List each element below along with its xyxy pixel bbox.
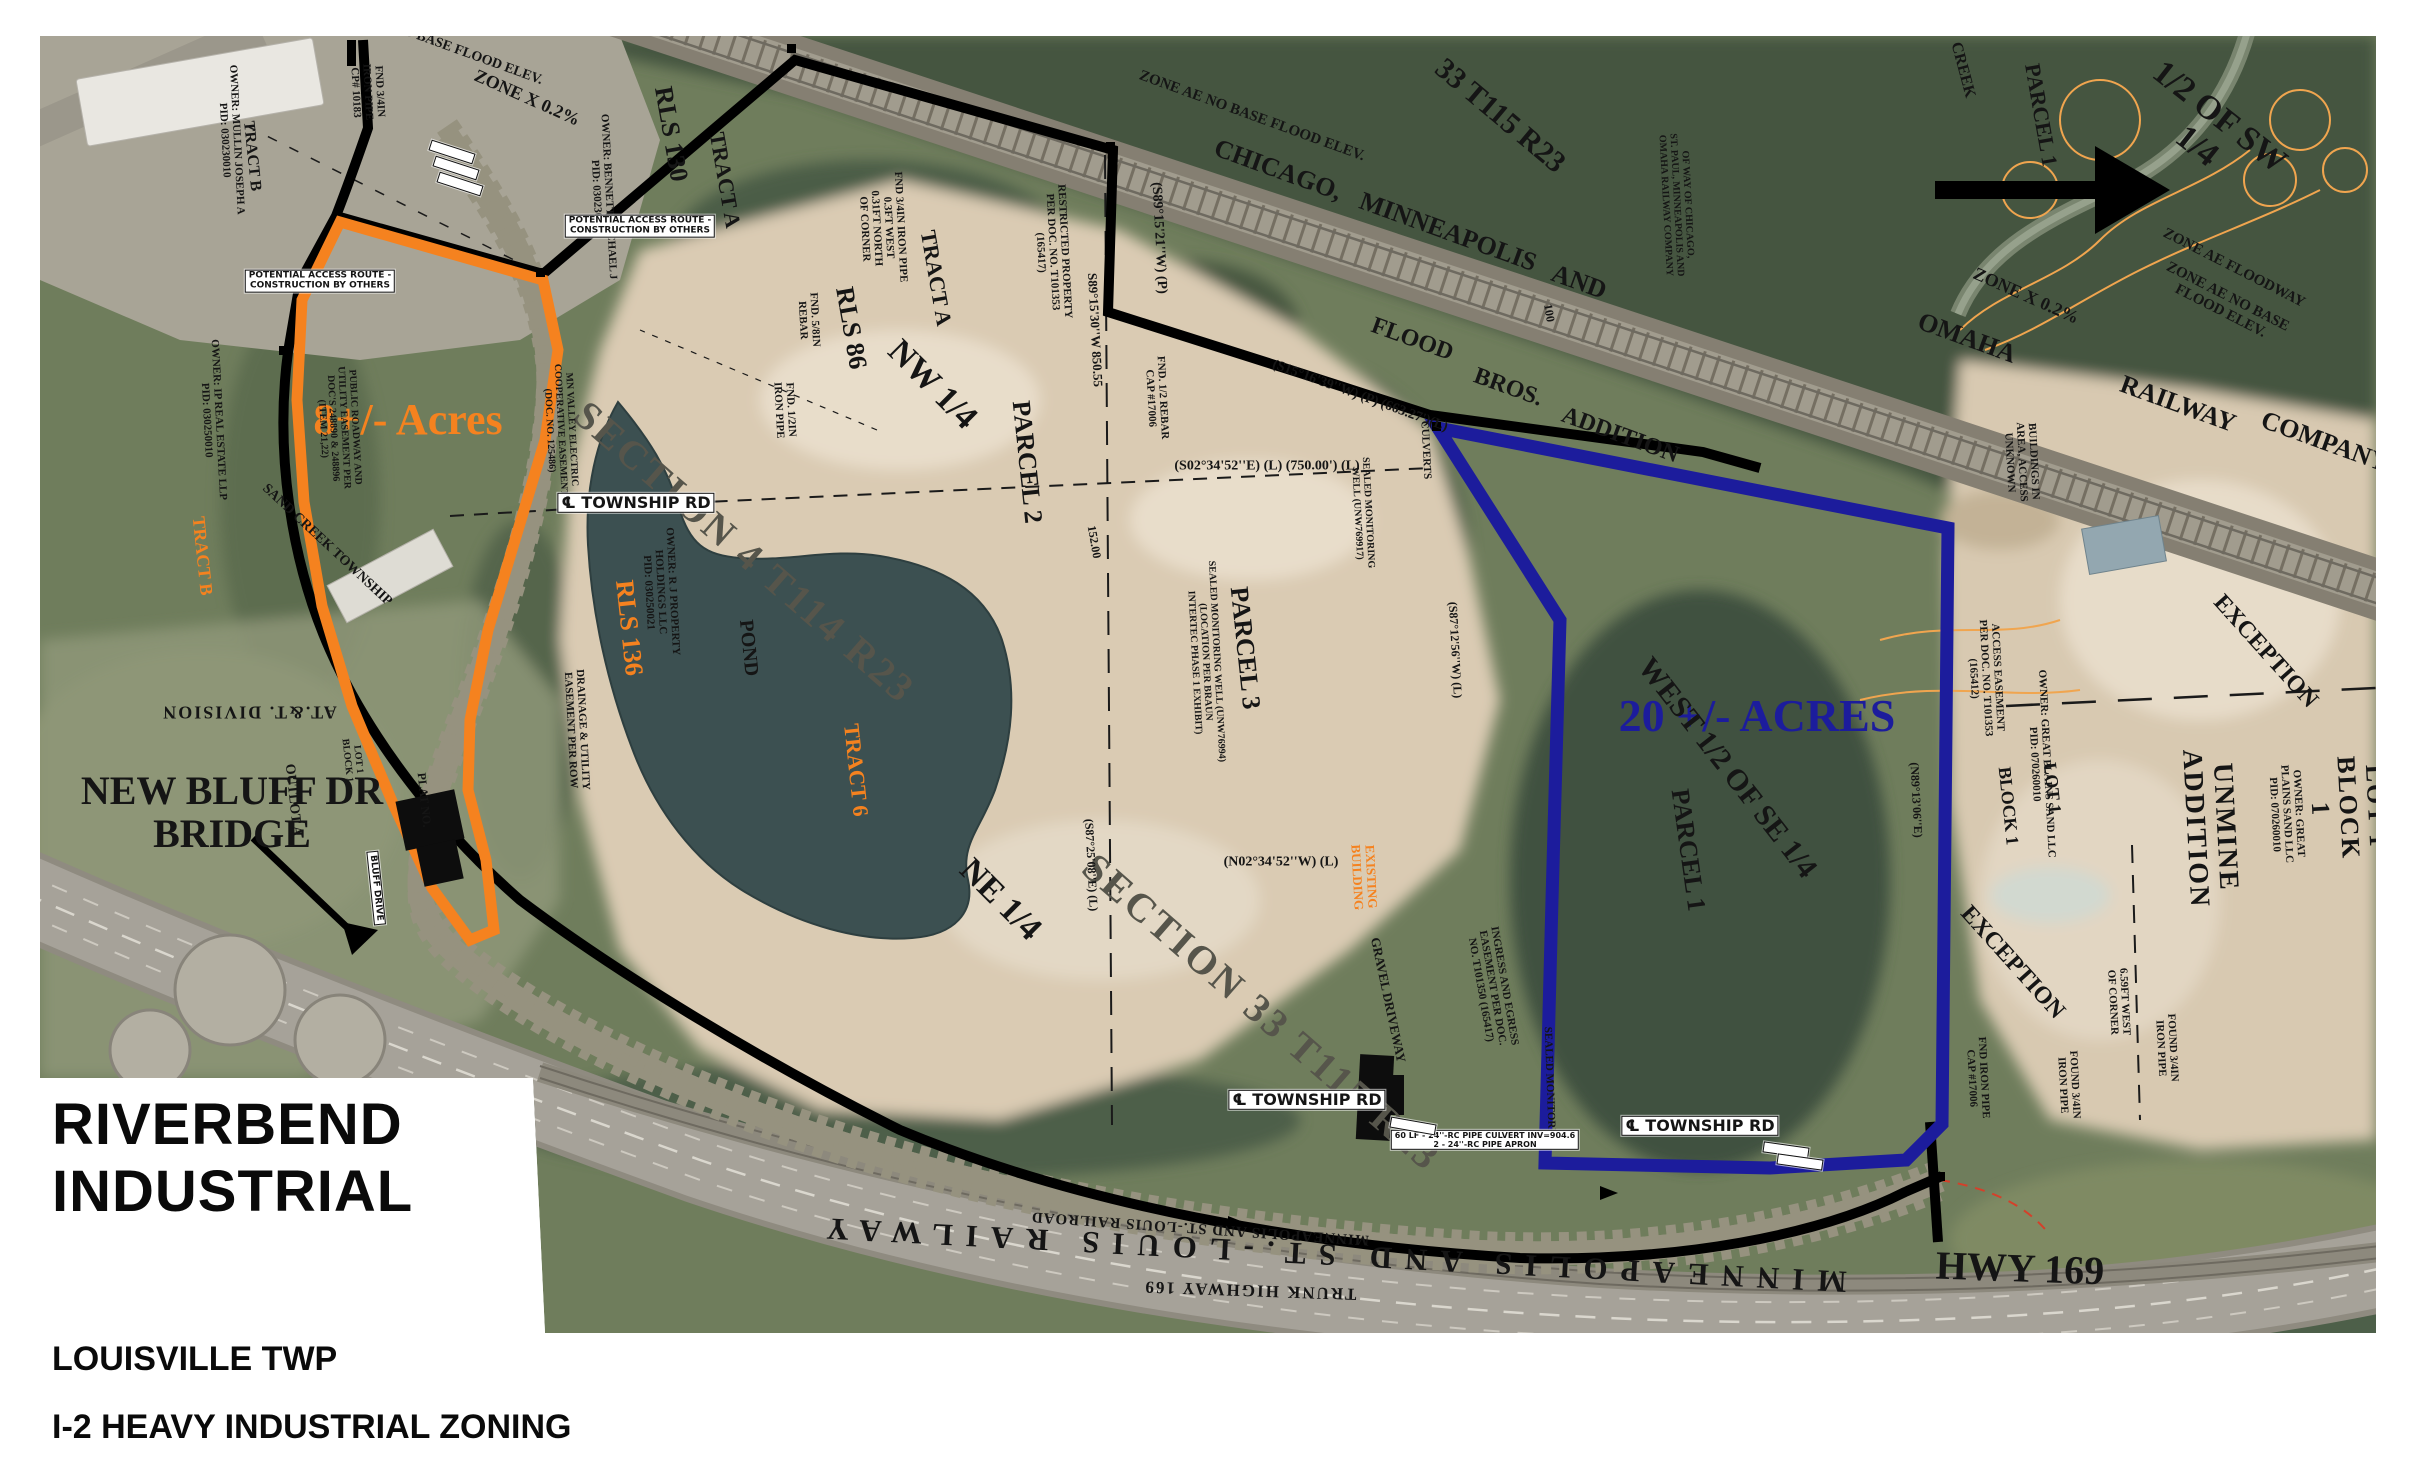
found-34-pipe-1: FOUND 3/4IN IRON PIPE — [2152, 1013, 2179, 1082]
fnd-34-cp10183: FND 3/4IN IRON PIPE CP# 10183 — [348, 63, 387, 121]
rr-railway: RAILWAY — [2116, 370, 2239, 438]
acres-8-label: 8+/- Acres — [313, 396, 502, 444]
t115-r23: 33 T115 R23 — [1429, 52, 1572, 179]
tract-6: TRACT 6 — [839, 722, 872, 817]
ingress-egress: INGRESS AND EGRESS EASEMENT PER DOC. NO.… — [1464, 926, 1520, 1051]
dim-100: 100 — [1541, 303, 1557, 323]
dim-152: 152.00 — [1085, 525, 1103, 560]
project-title-line1: RIVERBEND — [52, 1092, 413, 1159]
west-half-se: WEST 1/2 OF SE 1/4 — [1631, 652, 1823, 885]
rr-mstl-small: MINNEAPOLIS AND ST.-LOUIS RAILROAD — [1030, 1208, 1369, 1248]
bluff-drive: BLUFF DRIVE — [366, 851, 386, 926]
sealed-well-3: SEALED MONITORING — [1541, 1027, 1557, 1150]
section-33-label: SECTION 33 T115 R23 — [1074, 845, 1449, 1179]
rr-minneapolis: MINNEAPOLIS — [1356, 187, 1541, 277]
tract-b: TRACT B — [240, 120, 265, 192]
zone-x-2: ZONE X 0.2% — [1970, 264, 2082, 328]
att-division: AT.&T. DIVISION — [161, 702, 337, 721]
outlot-a: OUTLOT A — [282, 763, 305, 837]
owner-bennett: OWNER: BENNETT MICHAEL J PID: 030230010 — [586, 114, 618, 281]
sealed-well-2: SEALED MONITORING WELL (UNW76994) (LOCAT… — [1184, 560, 1227, 763]
west-of-corner: 6.59FT WEST OF CORNER — [2104, 968, 2131, 1037]
station-chip-6 — [1389, 1117, 1436, 1136]
culvert-note: 60 LF - 24''-RC PIPE CULVERT INV=904.6 2… — [1391, 1130, 1579, 1150]
acres-20-label: 20 +/- ACRES — [1619, 691, 1896, 741]
plat-no: PLAT NO. — [415, 772, 434, 828]
site-plan-page: NEW BLUFF DR BRIDGE8+/- Acres20 +/- ACRE… — [0, 0, 2415, 1466]
aerial-map: NEW BLUFF DR BRIDGE8+/- Acres20 +/- ACRE… — [0, 0, 2415, 1466]
block-1: BLOCK 1 — [1994, 766, 2022, 846]
owner-rj-property: OWNER: R J PROPERTY HOLDINGS LLC PID: 03… — [639, 527, 681, 657]
public-roadway-easement: PUBLIC ROADWAY AND UTILITY EASEMENT PER … — [313, 366, 363, 491]
township-rd-1: ℄ TOWNSHIP RD — [557, 493, 714, 513]
rls-86: RLS 86 — [830, 285, 872, 372]
station-chip-3 — [436, 172, 483, 197]
exception-2: EXCEPTION — [1955, 901, 2070, 1024]
fnd-half-pipe: FND. 1/2IN IRON PIPE — [771, 381, 798, 439]
map-label-layer: NEW BLUFF DR BRIDGE8+/- Acres20 +/- ACRE… — [0, 0, 2415, 1466]
fnd-34-pipe: FND 3/4IN IRON PIPE 0.3FT WEST 0.31FT NO… — [855, 171, 908, 284]
zone-ae-2: ZONE AE NO BASE FLOOD ELEV. — [1137, 68, 1367, 165]
fnd-58-rebar: FND. 5/8IN REBAR — [795, 292, 822, 348]
rr-and: AND — [1548, 259, 1611, 305]
brg-s15-16-39: (S15°16'39''W) (P) (663.27')(L) — [1270, 357, 1450, 435]
brg-s87-12-56: (S87°12'56''W) (L) — [1446, 601, 1464, 698]
brg-s02-34-52: (S02°34'52''E) (L) (750.00') (L) — [1174, 458, 1359, 473]
zone-ae-1: ZONE AE NO BASE FLOOD ELEV. — [2132, 246, 2317, 362]
existing-building: EXISTING BUILDING — [1348, 843, 1379, 910]
base-flood-elev: NO BASE FLOOD ELEV. — [391, 20, 544, 88]
station-chip-4 — [1762, 1141, 1809, 1158]
zoning-line: I-2 HEAVY INDUSTRIAL ZONING — [52, 1408, 572, 1447]
project-title-line2: INDUSTRIAL — [52, 1159, 413, 1226]
brg-s89-15-30: S89°15'30''W 850.55 — [1085, 273, 1105, 388]
rr-company: COMPANY — [2257, 406, 2392, 478]
access-easement: ACCESS EASEMENT PER DOC. NO. T101353 (16… — [1964, 619, 2006, 738]
unmine-addition: UNMINE ADDITION — [2174, 724, 2245, 932]
tract-b-orange: TRACT B — [188, 516, 216, 597]
found-34-pipe-2: FOUND 3/4IN IRON PIPE — [2054, 1050, 2081, 1119]
gravel-driveway: GRAVEL DRIVEWAY — [1368, 936, 1408, 1064]
nw-quarter: NW 1/4 — [880, 333, 984, 437]
potential-access-1: POTENTIAL ACCESS ROUTE - CONSTRUCTION BY… — [565, 215, 715, 238]
ne-quarter: NE 1/4 — [952, 852, 1048, 948]
flood-label: FLOOD — [1367, 313, 1456, 367]
lot-1: LOT 1 — [2040, 762, 2065, 815]
zone-ae-floodway: ZONE AE FLOODWAY — [2160, 225, 2307, 311]
parcel-3-label: PARCEL 3 — [1225, 585, 1266, 710]
sealed-well-1: SEALED MONITORING WELL (UNW769917) — [1348, 457, 1375, 569]
bridge-callout: NEW BLUFF DR BRIDGE — [81, 769, 383, 855]
tract-a-2: TRACT A — [916, 228, 956, 327]
exception-1: EXCEPTION — [2208, 590, 2323, 713]
fnd-pipe-17006: FND IRON PIPE CAP #17006 — [1963, 1036, 1991, 1119]
addition-label: ADDITION — [1558, 403, 1682, 469]
mn-valley-easement: MN VALLEY ELECTRIC COOPERATIVE EASEMENT … — [540, 363, 579, 497]
rls-130: RLS 130 — [649, 84, 693, 183]
creek-label: CREEK — [1947, 40, 1978, 99]
parcel-1-blue: PARCEL 1 — [1666, 787, 1711, 913]
parcel-2-label: PARCEL 2 — [1007, 399, 1048, 524]
owner-great-plains-2: OWNER: GREAT PLAINS SAND LLC PID: 070260… — [2265, 749, 2307, 880]
rr-chicago: CHICAGO, — [1210, 134, 1345, 206]
owner-mullin: OWNER: MULLIN JOSEPH A PID: 030230010 — [214, 64, 246, 215]
lot1-block1-east: LOT 1 BLOCK 1 — [2303, 754, 2393, 862]
township-line: LOUISVILLE TWP — [52, 1340, 337, 1379]
brg-n89-13-06: (N89°13'06''E) — [1908, 762, 1925, 838]
buildings-unknown: BUILDINGS IN AREA, ACCESS UNKNOWN — [2001, 421, 2041, 502]
sand-creek-township: SAND CREEK TOWNSHIP — [259, 481, 395, 609]
section-4-label: SECTION 4 T114 R23 — [566, 392, 924, 711]
hwy-169-label: HWY 169 — [1935, 1243, 2105, 1292]
drainage-easement: DRAINAGE & UTILITY EASEMENT PER ROW — [561, 669, 591, 791]
restricted-property: RESTRICTED PROPERTY PER DOC. NO. T101353… — [1031, 184, 1074, 320]
rr-omaha: OMAHA — [1914, 307, 2020, 368]
culverts: CULVERTS — [1418, 420, 1433, 479]
owner-real-estate: OWNER: IP REAL ESTATE LLP PID: 030250010 — [196, 339, 228, 501]
trunk-highway-169: TRUNK HIGHWAY 169 — [1143, 1277, 1357, 1303]
township-rd-3: ℄ TOWNSHIP RD — [1621, 1116, 1778, 1136]
tract-a-1: TRACT A — [705, 130, 745, 229]
bros-label: BROS. — [1470, 364, 1546, 413]
title-block: RIVERBEND INDUSTRIAL — [52, 1092, 413, 1225]
brg-s87-25-08: (S87°25'08''E) (L) — [1082, 818, 1100, 911]
brg-n02-34-52: (N02°34'52''W) (L) — [1224, 854, 1339, 869]
station-chip-5 — [1776, 1153, 1823, 1170]
township-rd-2: ℄ TOWNSHIP RD — [1228, 1090, 1385, 1110]
owner-great-plains-1: OWNER: GREAT PLAINS SAND LLC PID: 070260… — [2023, 669, 2057, 858]
brg-s89-15-21: (S89°15'21''W) (P) — [1149, 182, 1170, 294]
half-of-sw: 1/2 OF SW 1/4 — [2104, 39, 2312, 224]
pond-label: POND — [734, 619, 761, 678]
rr-right-of-way: OF WAY OF CHICAGO, ST. PAUL, MINNEAPOLIS… — [1656, 133, 1696, 278]
station-chip-1 — [428, 140, 475, 165]
rr-mstl-big: MINNEAPOLIS AND ST.-LOUIS RAILWAY — [813, 1211, 1848, 1299]
fnd-rebar-17006: FND. 1/2 REBAR CAP #17006 — [1142, 356, 1170, 441]
zone-x-1: ZONE X 0.2% — [471, 66, 583, 130]
parcel-1-ne: PARCEL 1 — [2020, 62, 2061, 169]
rls-136: RLS 136 — [610, 579, 648, 677]
potential-access-2: POTENTIAL ACCESS ROUTE - CONSTRUCTION BY… — [245, 270, 395, 293]
lot1-block1-west: LOT 1 BLOCK 1 — [339, 737, 365, 783]
station-chip-2 — [432, 156, 479, 181]
